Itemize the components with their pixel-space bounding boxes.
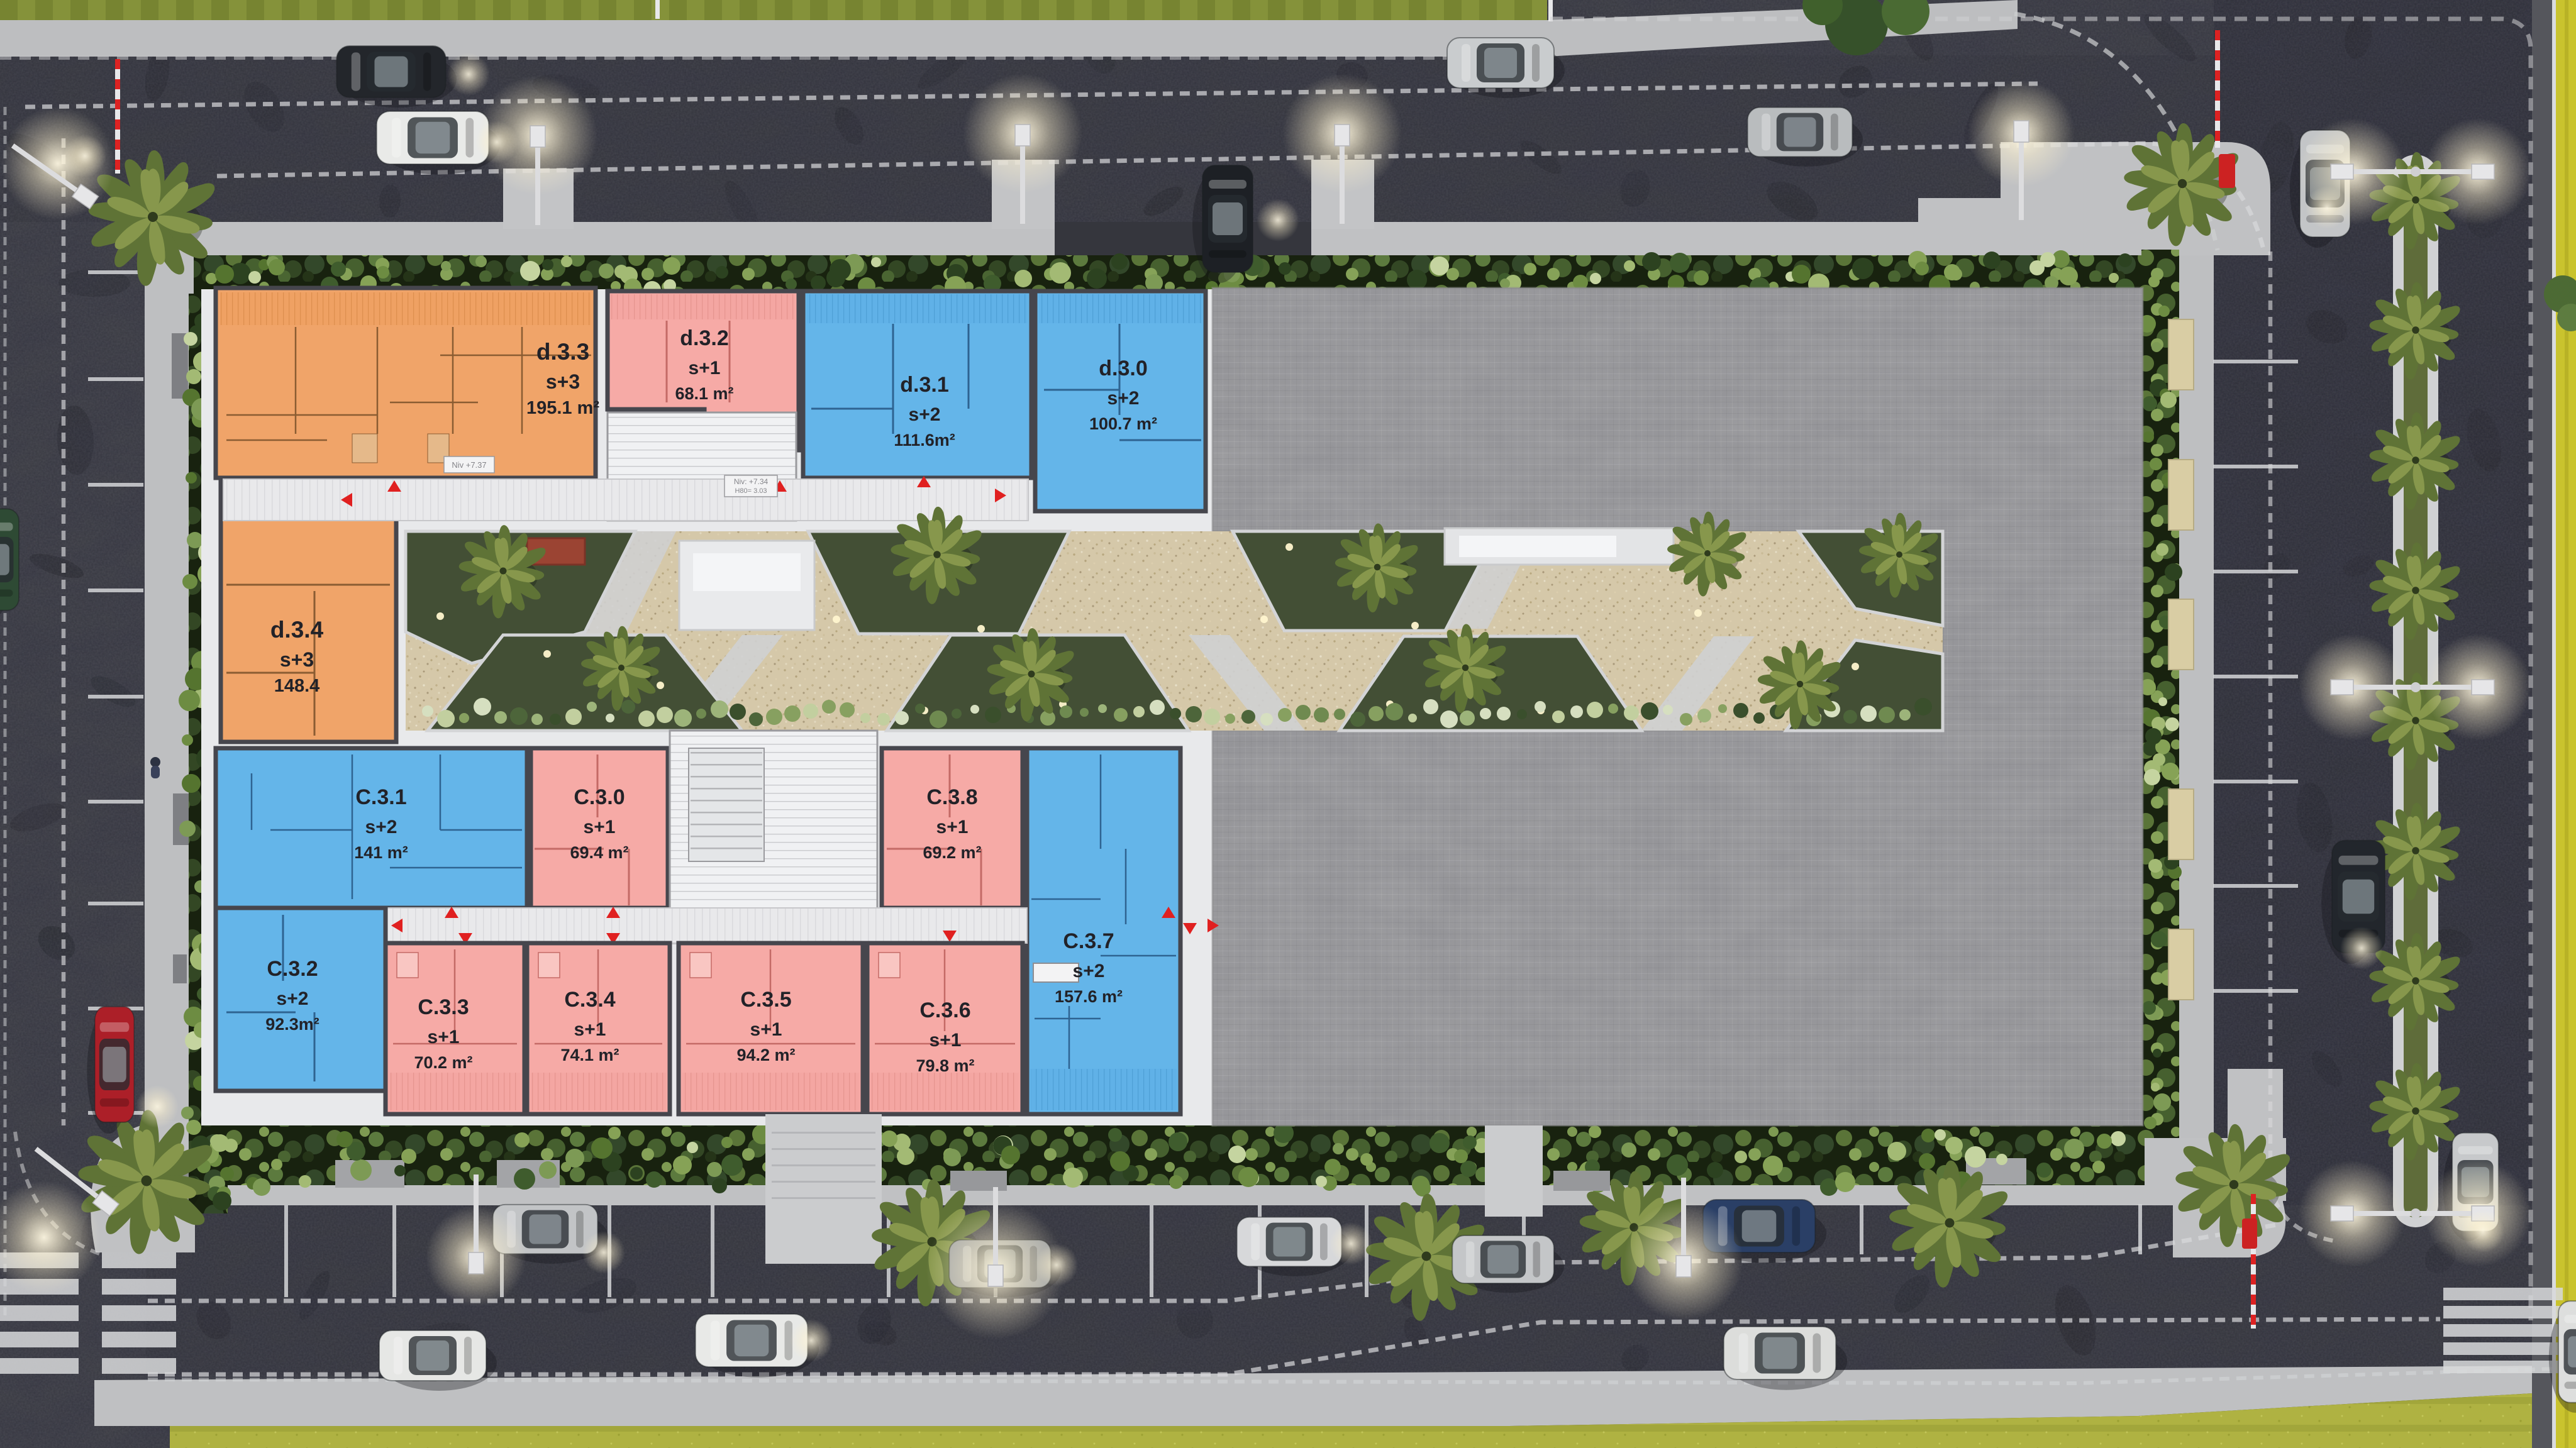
svg-text:74.1 m²: 74.1 m² bbox=[560, 1046, 619, 1064]
svg-text:s+2: s+2 bbox=[1108, 388, 1140, 409]
svg-text:157.6 m²: 157.6 m² bbox=[1055, 987, 1123, 1006]
svg-text:92.3m²: 92.3m² bbox=[265, 1015, 319, 1034]
svg-text:s+1: s+1 bbox=[428, 1027, 460, 1047]
svg-text:111.6m²: 111.6m² bbox=[894, 431, 955, 450]
svg-text:C.3.6: C.3.6 bbox=[919, 998, 970, 1022]
svg-text:s+2: s+2 bbox=[277, 988, 309, 1009]
svg-text:s+2: s+2 bbox=[1073, 961, 1105, 981]
svg-text:Niv +7.37: Niv +7.37 bbox=[452, 460, 486, 470]
svg-text:s+2: s+2 bbox=[909, 404, 941, 425]
svg-text:100.7 m²: 100.7 m² bbox=[1089, 414, 1157, 433]
svg-text:H80= 3.03: H80= 3.03 bbox=[735, 487, 767, 495]
svg-text:69.4 m²: 69.4 m² bbox=[570, 843, 628, 862]
svg-text:C.3.2: C.3.2 bbox=[267, 957, 318, 981]
svg-text:s+3: s+3 bbox=[280, 648, 314, 671]
svg-text:d.3.0: d.3.0 bbox=[1099, 356, 1147, 380]
svg-text:s+1: s+1 bbox=[750, 1019, 782, 1040]
svg-text:68.1 m²: 68.1 m² bbox=[675, 384, 733, 403]
svg-text:C.3.3: C.3.3 bbox=[418, 995, 469, 1019]
svg-text:C.3.5: C.3.5 bbox=[740, 988, 791, 1012]
svg-text:d.3.1: d.3.1 bbox=[900, 373, 948, 397]
svg-text:s+1: s+1 bbox=[930, 1030, 962, 1051]
svg-text:69.2 m²: 69.2 m² bbox=[923, 843, 981, 862]
svg-text:70.2 m²: 70.2 m² bbox=[414, 1053, 472, 1072]
svg-text:79.8 m²: 79.8 m² bbox=[916, 1056, 974, 1075]
svg-text:s+1: s+1 bbox=[584, 817, 616, 837]
svg-text:Niv: +7.34: Niv: +7.34 bbox=[734, 477, 769, 486]
svg-text:141 m²: 141 m² bbox=[354, 843, 408, 862]
svg-text:d.3.4: d.3.4 bbox=[270, 617, 324, 643]
svg-text:d.3.3: d.3.3 bbox=[536, 339, 589, 365]
svg-text:s+1: s+1 bbox=[936, 817, 969, 837]
svg-text:s+2: s+2 bbox=[365, 817, 397, 837]
svg-text:C.3.7: C.3.7 bbox=[1063, 929, 1114, 953]
svg-text:s+1: s+1 bbox=[574, 1019, 606, 1040]
svg-text:s+1: s+1 bbox=[689, 358, 721, 379]
svg-text:C.3.1: C.3.1 bbox=[355, 785, 406, 809]
svg-text:d.3.2: d.3.2 bbox=[680, 326, 728, 350]
svg-text:C.3.8: C.3.8 bbox=[926, 785, 977, 809]
svg-text:148.4: 148.4 bbox=[274, 676, 320, 696]
svg-text:C.3.0: C.3.0 bbox=[574, 785, 625, 809]
svg-text:C.3.4: C.3.4 bbox=[564, 988, 615, 1012]
svg-text:94.2 m²: 94.2 m² bbox=[736, 1046, 795, 1064]
svg-text:195.1 m²: 195.1 m² bbox=[526, 398, 599, 418]
svg-text:s+3: s+3 bbox=[546, 370, 580, 393]
